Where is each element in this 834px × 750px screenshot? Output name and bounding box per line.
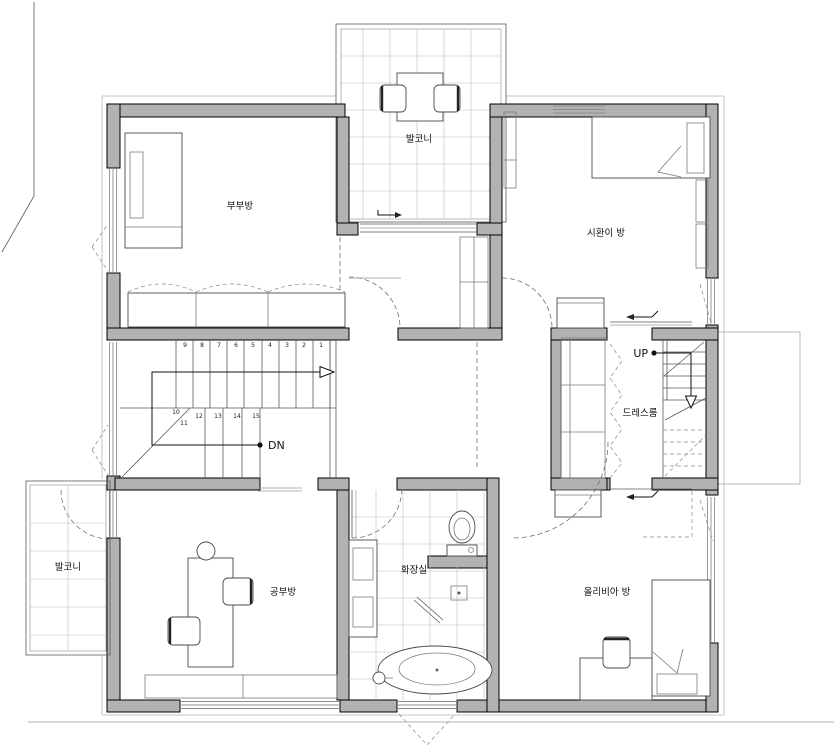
window-opening-dash [399, 714, 455, 745]
stair-walkline-up [651, 350, 696, 408]
room-label-master: 부부방 [227, 201, 253, 212]
walkline-arrowhead [686, 396, 697, 408]
wall-upstair-bottom-cap [652, 478, 718, 490]
balcony-top-tile-grid [341, 29, 501, 219]
stairs-down: 9 8 7 6 5 4 3 2 1 10 11 12 13 14 15 DN [120, 340, 336, 478]
bathroom-vanity [349, 540, 377, 637]
room-label-sihwan: 시환이 방 [587, 227, 625, 239]
door-swing-arc [352, 488, 402, 538]
master-bedroom: 부부방 [125, 133, 401, 328]
wall-dress-left [551, 328, 561, 490]
window-opening-dash [700, 284, 711, 323]
slide-arrow [626, 491, 658, 500]
svg-text:5: 5 [251, 342, 255, 349]
toilet [447, 511, 477, 556]
floor-plan-drawing: 발코니 [0, 0, 834, 750]
master-door-swing-arc [349, 277, 400, 328]
wardrobe-hanger-zigzag [610, 344, 622, 478]
stair-winder-diagonal [122, 408, 190, 477]
wall-stair-bottom [115, 478, 260, 490]
stair-numbers-upper: 9 8 7 6 5 4 3 2 1 [183, 342, 323, 349]
svg-text:7: 7 [217, 342, 221, 349]
sliding-door-dress-bottom [610, 489, 692, 500]
balcony-chair-right [434, 85, 460, 112]
sihwan-door-swing-arc [502, 278, 552, 328]
wall-study-bath [337, 490, 349, 700]
wall-right-2 [706, 325, 718, 495]
stair-down-label: DN [268, 439, 285, 452]
bathroom-door [352, 488, 402, 538]
svg-text:8: 8 [200, 342, 204, 349]
wall-master-right [337, 117, 349, 235]
stair-treads-upper [176, 340, 330, 408]
svg-text:10: 10 [172, 409, 180, 416]
door-swing-arc [61, 490, 110, 539]
balcony-top-inner-rail [341, 29, 501, 219]
dress-wardrobe [561, 338, 605, 478]
wall-master-bottom [107, 328, 349, 340]
balcony-left: 발코니 [26, 481, 110, 655]
study-stool [197, 542, 215, 560]
olivia-cabinet [555, 490, 601, 517]
olivia-chair [603, 637, 630, 668]
wall-bottom-2 [340, 700, 397, 712]
sihwan-room: 시환이 방 [502, 112, 710, 328]
exterior-stair-bump [718, 332, 800, 484]
wall-stub-balcony-left [337, 223, 358, 235]
master-bed [125, 133, 182, 248]
wall-sihwan-left-upper [490, 117, 502, 223]
window-master-left [92, 168, 117, 273]
svg-text:1: 1 [319, 342, 323, 349]
svg-text:14: 14 [233, 413, 241, 420]
wall-left-1 [107, 104, 120, 168]
room-label-balcony-left: 발코니 [55, 562, 81, 573]
room-label-study: 공부방 [270, 587, 296, 598]
window-opening-dash [92, 224, 108, 271]
study-chair-2 [168, 617, 200, 645]
floor-plan: 발코니 [0, 0, 834, 750]
window-bath-bottom [397, 702, 457, 746]
bathroom: 화장실 [349, 488, 492, 700]
wall-bottom-1 [107, 700, 180, 712]
upstair-treads-dashed [663, 430, 706, 476]
door-balcony-left [61, 490, 117, 539]
room-label-balcony-top: 발코니 [406, 134, 432, 145]
wall-top-left [107, 104, 345, 117]
sihwan-bed [592, 117, 710, 178]
svg-text:2: 2 [302, 342, 306, 349]
svg-text:13: 13 [214, 413, 222, 420]
wall-toilet-partition [428, 556, 487, 568]
room-label-dress: 드레스룸 [623, 408, 658, 419]
room-label-bathroom: 화장실 [401, 565, 427, 576]
sliding-door-dress-top [610, 311, 692, 325]
slide-arrow [626, 311, 658, 320]
wall-vestibule-bottom [398, 328, 502, 340]
svg-text:11: 11 [180, 420, 188, 427]
sihwan-cabinet [557, 298, 604, 328]
window-stair-left [92, 342, 117, 476]
wall-bath-top [397, 478, 497, 490]
threshold-study [258, 488, 302, 491]
study-desk [188, 558, 233, 667]
master-closet [128, 293, 345, 327]
study-chair-1 [223, 578, 253, 605]
window-sihwan-right [700, 278, 715, 325]
stair-up-label: UP [633, 347, 648, 360]
window-opening-dash [92, 425, 108, 475]
window-study-bottom [180, 702, 340, 709]
svg-text:12: 12 [195, 413, 203, 420]
tub-faucet [373, 672, 385, 684]
balcony-chair-left [380, 85, 406, 112]
svg-text:9: 9 [183, 342, 187, 349]
hall [258, 210, 692, 500]
balcony-top: 발코니 [336, 24, 506, 222]
sliding-door-balcony [360, 210, 477, 232]
svg-text:4: 4 [268, 342, 272, 349]
olivia-bed [652, 580, 710, 696]
upstair-winder-diagonal [664, 342, 704, 376]
wall-stub-balcony-right [477, 223, 502, 235]
shower [414, 586, 467, 623]
wall-sihwan-left-lower [490, 235, 502, 328]
wall-upstair-top-cap [652, 328, 718, 340]
upstair-treads-solid [663, 352, 706, 400]
wall-study-stub [318, 478, 349, 490]
study-room: 공부방 [145, 542, 337, 698]
svg-text:3: 3 [285, 342, 289, 349]
walkline-arrowhead [320, 367, 334, 378]
study-sideboard [145, 675, 337, 698]
closet-hanger-dashes [128, 284, 345, 292]
stair-walkline-down [152, 367, 334, 448]
svg-text:6: 6 [234, 342, 238, 349]
bathtub [373, 646, 492, 694]
site-boundary-line [2, 2, 34, 252]
wall-left-4 [107, 538, 120, 712]
balcony-top-outer-rail [336, 24, 506, 222]
upstair-break-line [665, 398, 706, 420]
svg-text:15: 15 [252, 413, 260, 420]
room-label-olivia: 올리비아 방 [584, 587, 631, 598]
